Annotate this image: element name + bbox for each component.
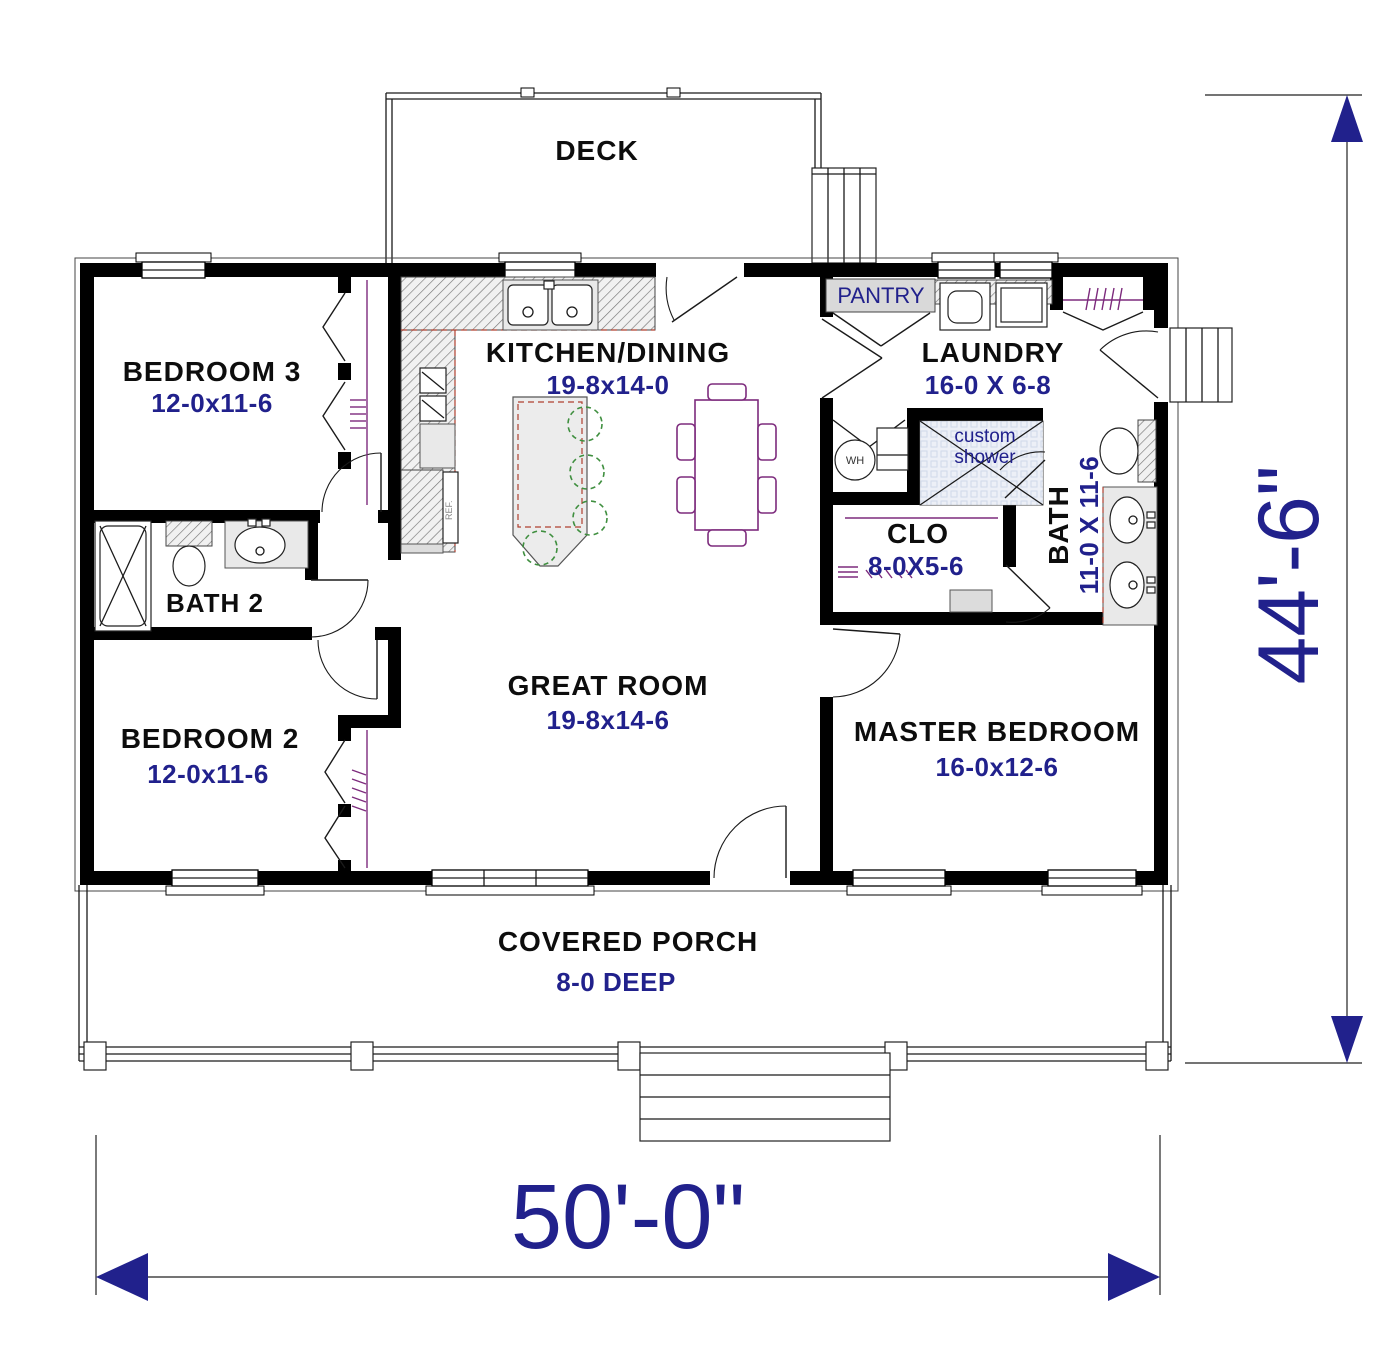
deck-post [521,88,534,97]
deck-post [667,88,680,97]
chair-icon [677,424,695,460]
clo-dims: 8-0X5-6 [868,551,964,581]
chair-icon [758,424,776,460]
pantry-doors [833,313,930,346]
bedroom2-label: BEDROOM 2 [121,723,300,754]
arrow-left-icon [96,1253,148,1301]
porch-post [1146,1042,1168,1070]
window [847,870,951,895]
master-bath-fixtures [1100,420,1157,625]
window [1042,870,1142,895]
deck-steps [812,168,876,263]
bedroom3-door [322,453,381,512]
window [499,253,581,278]
master-bath-dims: 11-0 X 11-6 [1074,456,1104,595]
chair-icon [758,477,776,513]
front-door [710,806,790,887]
pantry-label: PANTRY [837,283,925,308]
chair-icon [708,530,746,546]
bedroom2-door [318,640,377,699]
kitchen-sink [503,280,598,330]
porch-label: COVERED PORCH [498,926,758,957]
height-dimension: 44'-6" [1185,95,1363,1063]
bedroom3-label: BEDROOM 3 [123,356,302,387]
arrow-down-icon [1331,1016,1363,1063]
bath2-label: BATH 2 [166,588,264,618]
toilet [1100,420,1156,482]
porch-post [618,1042,640,1070]
laundry-label: LAUNDRY [922,337,1065,368]
window [994,253,1058,278]
bedroom2-closet [325,730,367,868]
bath2-door [311,580,368,637]
master-bedroom-label: MASTER BEDROOM [854,716,1140,747]
master-bath-label: BATH [1043,485,1074,565]
laundry-double-door [822,319,882,398]
shower-label-1: custom [954,426,1015,447]
porch-post [351,1042,373,1070]
dining-table [677,384,776,546]
freezer [877,428,908,470]
window [136,253,211,278]
hanging-clothes-icon [1086,288,1122,310]
porch-steps [640,1053,890,1141]
shower-label-2: shower [954,447,1016,468]
svg-text:WH: WH [846,455,864,467]
porch-dims: 8-0 DEEP [556,967,676,997]
floor-plan-drawing: DECK [0,0,1378,1351]
arrow-up-icon [1331,95,1363,142]
porch-post [84,1042,106,1070]
covered-porch [79,885,1171,1141]
vanity-sink [225,519,308,568]
washer [940,283,990,330]
bathtub [95,521,151,631]
master-door [818,625,900,697]
utility-room: WH [835,428,908,480]
kitchen-label: KITCHEN/DINING [486,337,730,368]
window [426,870,594,895]
hall-closet-top-right [1063,288,1143,330]
arrow-right-icon [1108,1253,1160,1301]
side-entry-door [1100,328,1232,402]
deck-door [656,261,744,322]
master-bedroom-dims: 16-0x12-6 [935,752,1058,782]
width-dimension: 50'-0" [96,1135,1160,1301]
toilet [166,521,212,586]
range [420,424,455,468]
custom-shower: custom shower [920,421,1045,505]
dryer [996,283,1047,327]
deck-area: DECK [386,88,876,263]
bedroom3-dims: 12-0x11-6 [151,388,273,418]
bedroom3-closet [323,280,367,505]
refrigerator: REF. [401,470,458,553]
double-vanity [1103,487,1157,625]
laundry-dims: 16-0 X 6-8 [925,370,1051,400]
chair-icon [677,477,695,513]
clo-label: CLO [887,518,949,549]
svg-text:REF.: REF. [444,500,454,520]
bedroom2-dims: 12-0x11-6 [147,759,269,789]
window [166,870,264,895]
window [932,253,1001,278]
height-dim-text: 44'-6" [1241,465,1337,684]
laundry-area: PANTRY [826,279,1052,330]
great-room-label: GREAT ROOM [508,670,709,701]
side-steps [1170,328,1232,402]
width-dim-text: 50'-0" [511,1166,745,1268]
floor-plan-page: DECK [0,0,1378,1351]
kitchen-dims: 19-8x14-0 [546,370,669,400]
deck-label: DECK [555,135,638,166]
hanging-clothes-icon [350,400,366,428]
chair-icon [708,384,746,400]
hanging-clothes-icon [352,770,366,811]
kitchen-island [513,397,607,566]
great-room-dims: 19-8x14-6 [546,705,669,735]
